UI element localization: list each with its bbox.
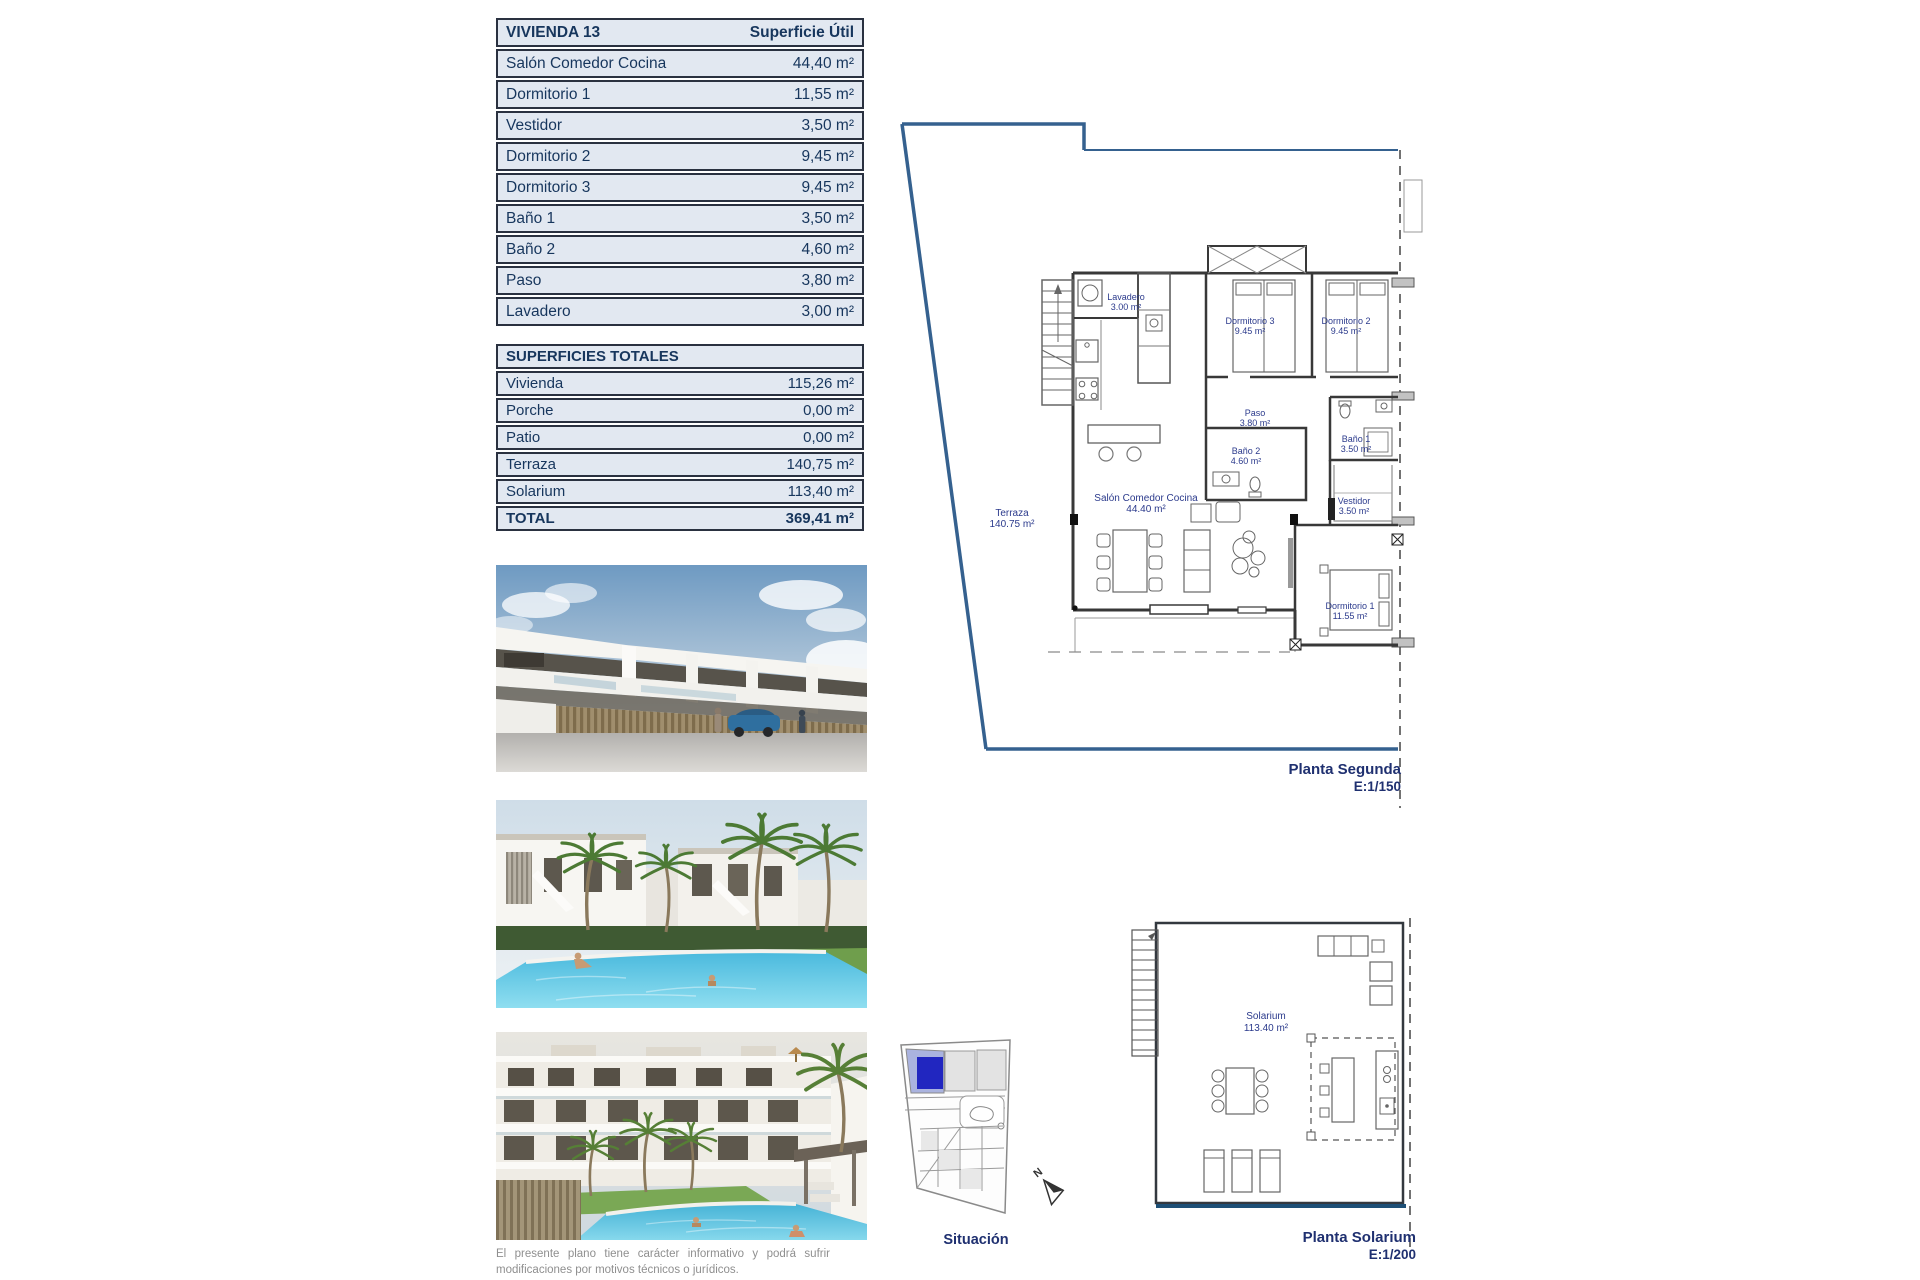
floor-plan-segunda: Lavadero 3.00 m² Dormitorio 3 9.45 m² Do… <box>898 110 1430 812</box>
row-value: 44,40 m² <box>793 55 854 73</box>
svg-text:44.40 m²: 44.40 m² <box>1126 504 1166 515</box>
row-value: 113,40 m² <box>788 483 854 500</box>
room-label-lavadero: Lavadero <box>1107 292 1145 302</box>
row-value: 9,45 m² <box>801 148 854 166</box>
svg-text:9.45 m²: 9.45 m² <box>1235 326 1266 336</box>
svg-text:113.40 m²: 113.40 m² <box>1244 1023 1289 1034</box>
table-row: Vestidor 3,50 m² <box>496 111 864 140</box>
section-cut-line <box>1392 150 1422 808</box>
table-row: Patio 0,00 m² <box>496 425 864 450</box>
row-label: Lavadero <box>506 303 571 321</box>
svg-text:3.50 m²: 3.50 m² <box>1339 506 1370 516</box>
row-value: 3,50 m² <box>801 210 854 228</box>
room-label-dorm1: Dormitorio 1 <box>1325 601 1374 611</box>
room-label-paso: Paso <box>1245 408 1266 418</box>
row-value: 3,00 m² <box>801 303 854 321</box>
wardrobe <box>1208 246 1306 273</box>
plan-sheet: { "colors": { "table_bg": "#e2e8f1", "ta… <box>0 0 1920 1280</box>
room-label-solarium: Solarium <box>1246 1011 1285 1022</box>
render-photo-pool <box>496 800 867 1008</box>
svg-text:N: N <box>1031 1166 1045 1180</box>
table-row: Paso 3,80 m² <box>496 266 864 295</box>
svg-text:11.55 m²: 11.55 m² <box>1333 611 1368 621</box>
table-row: Solarium 113,40 m² <box>496 479 864 504</box>
salon-furniture <box>1097 502 1293 592</box>
svg-text:3.50 m²: 3.50 m² <box>1341 444 1372 454</box>
vivienda-table-header: VIVIENDA 13 Superficie Útil <box>496 18 864 47</box>
row-label: Baño 2 <box>506 241 555 259</box>
plan-segunda-scale: E:1/150 <box>1354 779 1401 794</box>
row-label: Patio <box>506 429 540 446</box>
row-value: 9,45 m² <box>801 179 854 197</box>
render-photo-apartments <box>496 1032 867 1240</box>
row-value: 4,60 m² <box>801 241 854 259</box>
vivienda-table: VIVIENDA 13 Superficie Útil Salón Comedo… <box>496 18 864 326</box>
row-label: Solarium <box>506 483 565 500</box>
svg-text:4.60 m²: 4.60 m² <box>1231 456 1262 466</box>
row-value: 3,80 m² <box>801 272 854 290</box>
room-label-bano1: Baño 1 <box>1342 434 1371 444</box>
row-label: Dormitorio 2 <box>506 148 590 166</box>
park-plaza <box>960 1096 1004 1129</box>
row-label: Porche <box>506 402 554 419</box>
svg-text:9.45 m²: 9.45 m² <box>1331 326 1362 336</box>
totales-table-header: SUPERFICIES TOTALES <box>496 344 864 369</box>
row-value: 0,00 m² <box>803 429 854 446</box>
row-label: Salón Comedor Cocina <box>506 55 666 73</box>
room-label-vestidor: Vestidor <box>1338 496 1371 506</box>
svg-text:140.75 m²: 140.75 m² <box>989 519 1035 530</box>
row-value: 140,75 m² <box>786 456 854 473</box>
row-label: Dormitorio 1 <box>506 86 590 104</box>
table-row: Dormitorio 1 11,55 m² <box>496 80 864 109</box>
vivienda-title: VIVIENDA 13 <box>506 24 600 42</box>
hedge <box>496 926 867 950</box>
plan-solarium-title: Planta Solarium <box>1303 1229 1416 1246</box>
highlighted-plot <box>906 1049 944 1093</box>
total-row: TOTAL 369,41 m² <box>496 506 864 531</box>
row-label: Vivienda <box>506 375 563 392</box>
table-row: Salón Comedor Cocina 44,40 m² <box>496 49 864 78</box>
terrace-outline <box>902 124 1398 749</box>
situation-map: N Situación <box>898 1036 1083 1251</box>
room-label-bano2: Baño 2 <box>1232 446 1261 456</box>
table-row: Baño 1 3,50 m² <box>496 204 864 233</box>
row-value: 3,50 m² <box>801 117 854 135</box>
table-row: Vivienda 115,26 m² <box>496 371 864 396</box>
bano2-fixtures <box>1213 472 1261 497</box>
table-row: Baño 2 4,60 m² <box>496 235 864 264</box>
room-label-dorm3: Dormitorio 3 <box>1225 316 1274 326</box>
totales-title: SUPERFICIES TOTALES <box>506 348 679 365</box>
row-label: Baño 1 <box>506 210 555 228</box>
disclaimer-text: El presente plano tiene carácter informa… <box>496 1246 830 1278</box>
room-label-dorm2: Dormitorio 2 <box>1321 316 1370 326</box>
render-photo-street <box>496 565 867 772</box>
table-row: Dormitorio 3 9,45 m² <box>496 173 864 202</box>
table-row: Lavadero 3,00 m² <box>496 297 864 326</box>
table-row: Porche 0,00 m² <box>496 398 864 423</box>
row-value: 0,00 m² <box>803 402 854 419</box>
svg-text:3.00 m²: 3.00 m² <box>1111 302 1142 312</box>
overhang-lines <box>1048 618 1295 652</box>
room-labels: Lavadero 3.00 m² Dormitorio 3 9.45 m² Do… <box>989 292 1374 621</box>
solarium-stairs <box>1132 930 1158 1056</box>
row-value: 115,26 m² <box>788 375 854 392</box>
table-row: Terraza 140,75 m² <box>496 452 864 477</box>
plan-segunda-title: Planta Segunda <box>1288 761 1401 778</box>
totales-table: SUPERFICIES TOTALES Vivienda 115,26 m² P… <box>496 344 864 531</box>
neighbor-plots <box>945 1050 1006 1091</box>
row-label: Terraza <box>506 456 556 473</box>
row-value: 11,55 m² <box>794 86 854 104</box>
apartment-facade <box>496 1045 831 1186</box>
slat-fence <box>496 1180 581 1240</box>
svg-text:3.80 m²: 3.80 m² <box>1240 418 1271 428</box>
road <box>496 733 867 772</box>
row-label: Vestidor <box>506 117 562 135</box>
room-label-salon: Salón Comedor Cocina <box>1094 493 1198 504</box>
row-label: Paso <box>506 272 541 290</box>
situation-title: Situación <box>943 1232 1008 1248</box>
total-value: 369,41 m² <box>786 510 854 527</box>
floor-plan-solarium: Solarium 113.40 m² Planta Solarium E:1/2… <box>1126 918 1442 1270</box>
compass-north-icon: N <box>1028 1163 1066 1205</box>
superficie-util-header: Superficie Útil <box>750 24 854 42</box>
salon-window-2 <box>1238 607 1266 613</box>
plan-solarium-scale: E:1/200 <box>1369 1247 1416 1262</box>
table-row: Dormitorio 2 9,45 m² <box>496 142 864 171</box>
stairs <box>1042 280 1073 405</box>
row-label: Dormitorio 3 <box>506 179 590 197</box>
total-label: TOTAL <box>506 510 555 527</box>
room-label-terraza: Terraza <box>995 508 1029 519</box>
salon-window <box>1150 605 1208 614</box>
